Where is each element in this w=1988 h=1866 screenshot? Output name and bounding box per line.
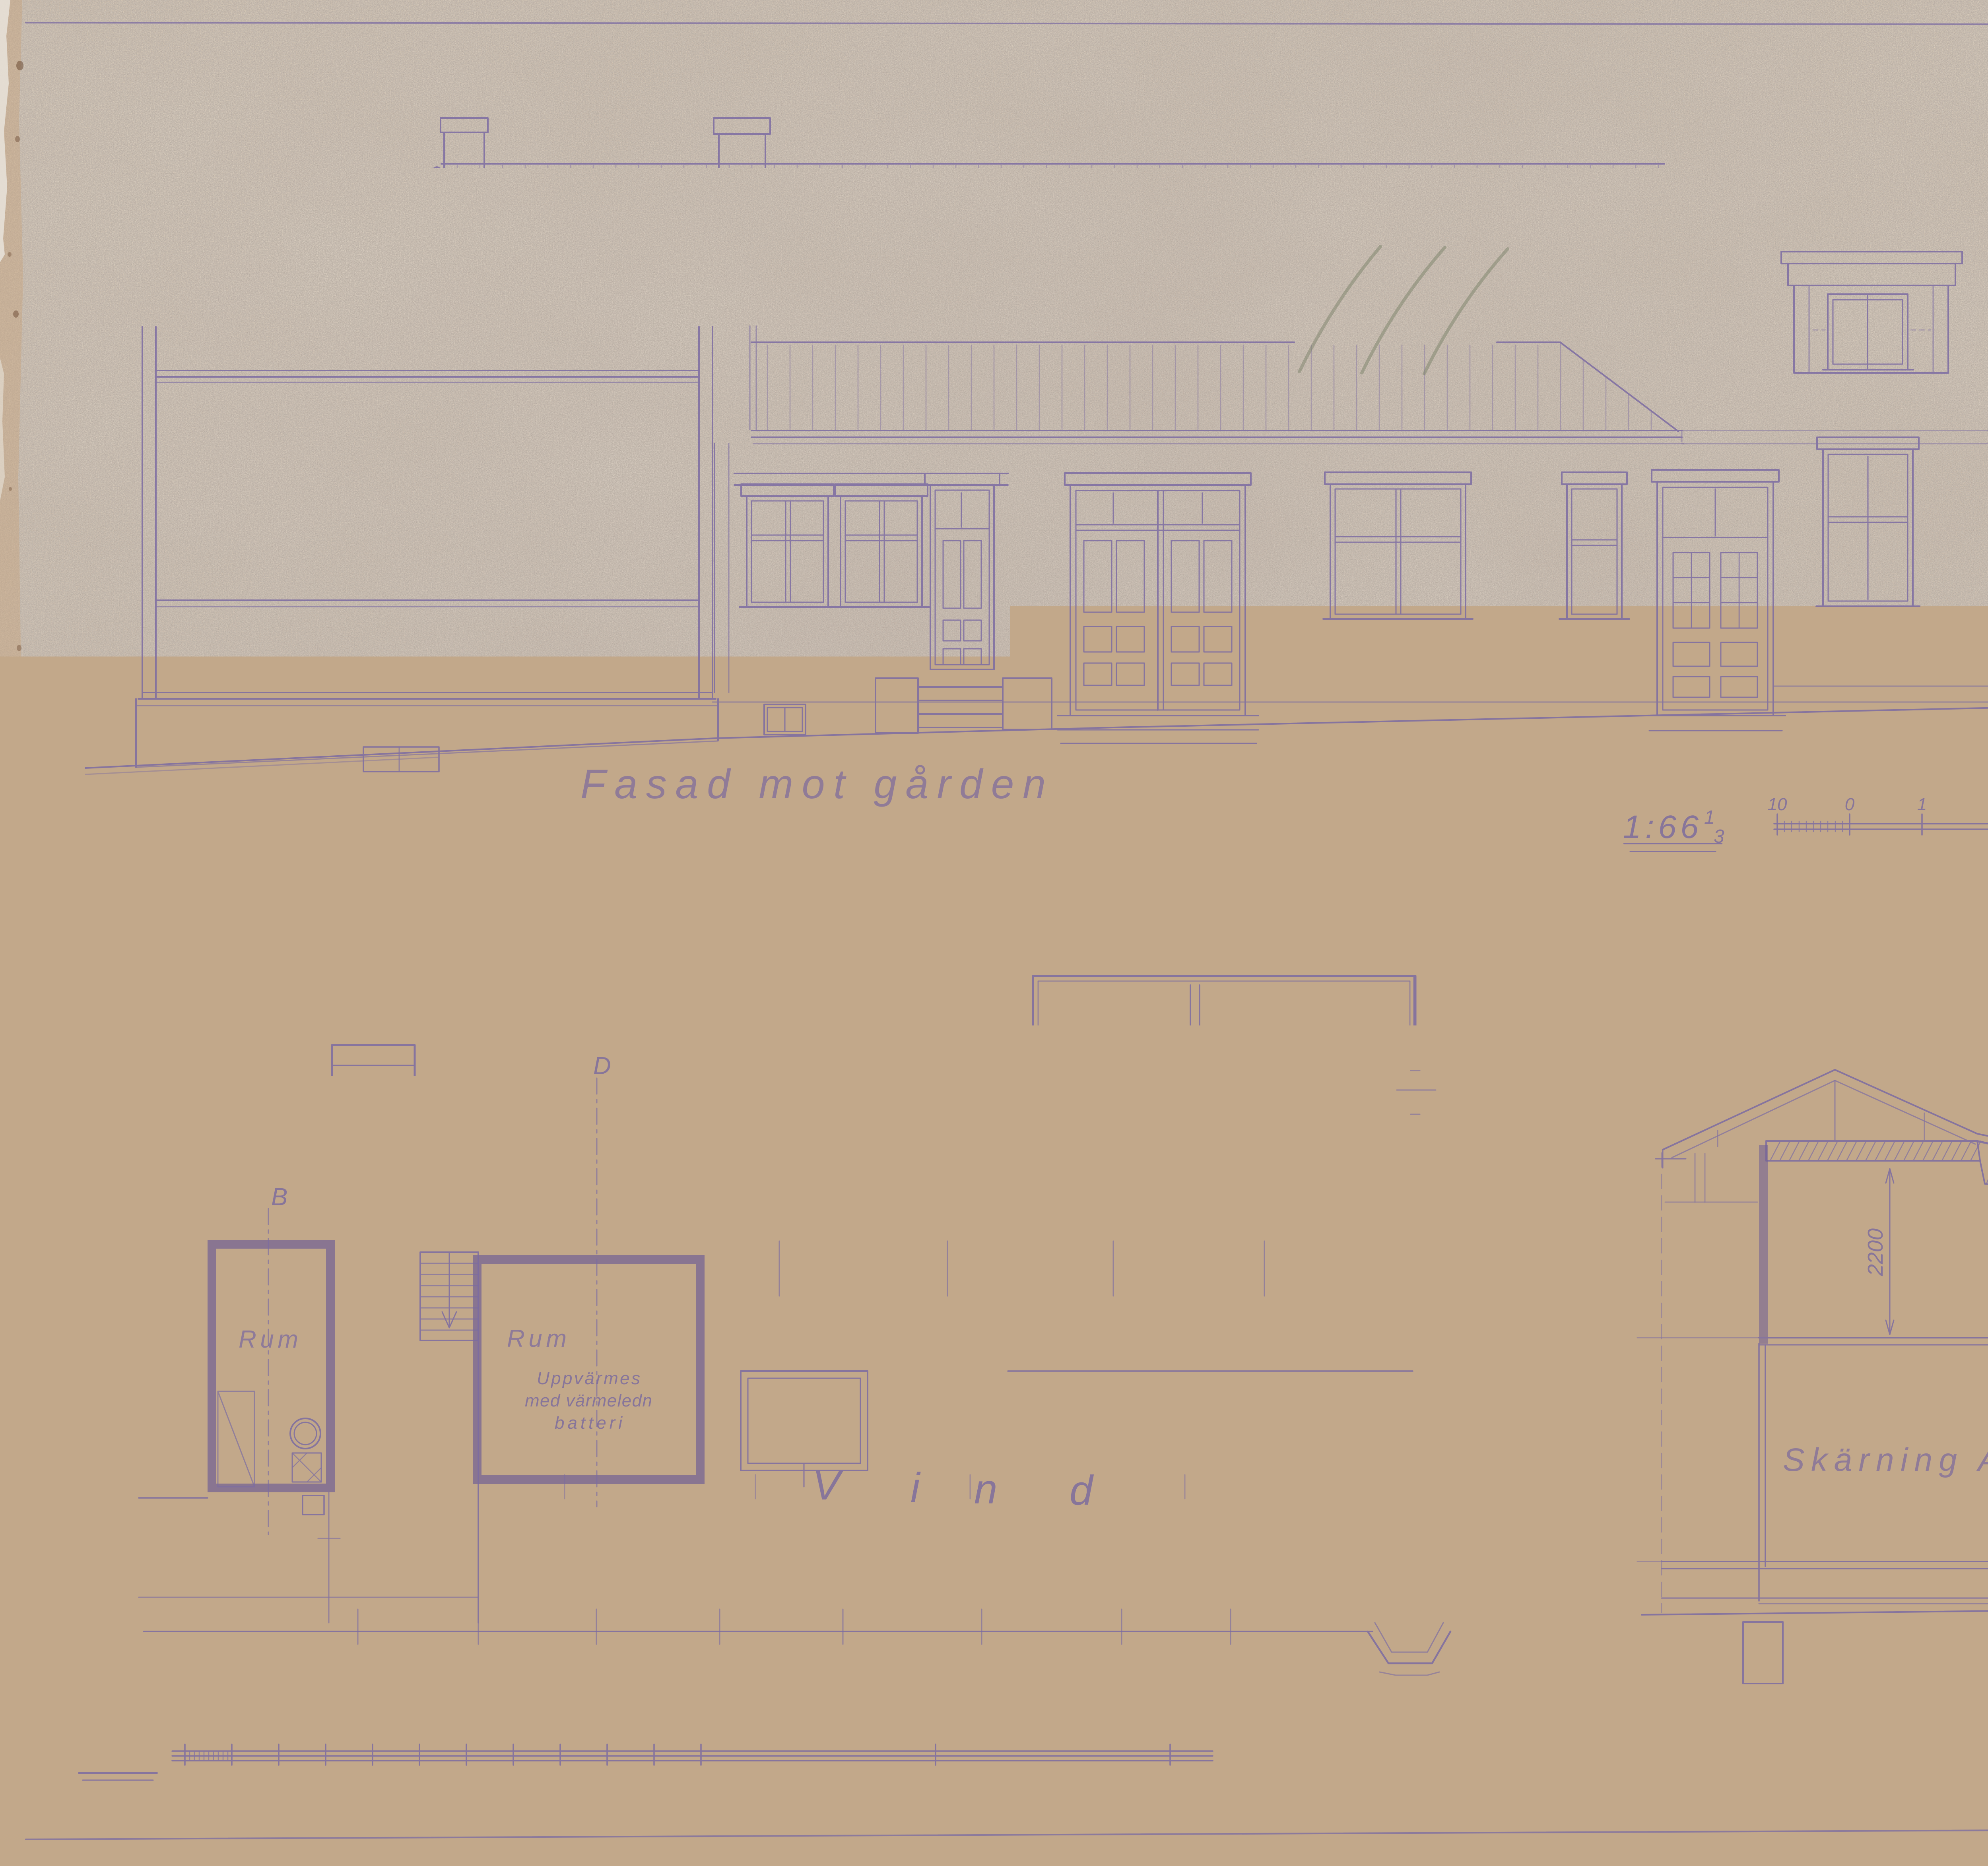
svg-text:3: 3	[1714, 826, 1724, 847]
svg-text:0: 0	[1845, 795, 1855, 814]
svg-text:0: 0	[227, 1725, 237, 1744]
svg-text:V: V	[812, 1462, 844, 1509]
svg-text:1: 1	[1917, 795, 1927, 814]
svg-text:5: 5	[462, 1725, 472, 1744]
svg-text:Fasad mot gården: Fasad mot gården	[580, 761, 1046, 807]
svg-text:10: 10	[691, 1725, 711, 1744]
svg-text:Rum: Rum	[507, 1325, 567, 1352]
svg-text:1:66: 1:66	[1623, 809, 1699, 845]
svg-text:Uppvärmes: Uppvärmes	[537, 1369, 640, 1388]
svg-text:1:100: 1:100	[82, 1735, 153, 1775]
svg-text:2: 2	[320, 1725, 330, 1744]
svg-text:i: i	[911, 1464, 921, 1511]
svg-text:4: 4	[415, 1725, 424, 1744]
svg-text:D: D	[593, 1052, 611, 1080]
svg-text:2200: 2200	[1864, 1228, 1887, 1276]
svg-text:10: 10	[175, 1725, 195, 1744]
svg-text:20: 20	[1160, 1725, 1180, 1744]
svg-text:15: 15	[926, 1725, 945, 1744]
svg-text:3: 3	[368, 1725, 378, 1744]
svg-text:C: C	[588, 1501, 607, 1529]
svg-text:B: B	[271, 1183, 287, 1211]
svg-text:1: 1	[274, 1725, 283, 1744]
svg-text:10: 10	[1768, 795, 1787, 814]
svg-text:1: 1	[1704, 807, 1715, 828]
svg-text:n: n	[974, 1466, 997, 1513]
svg-text:6: 6	[509, 1725, 518, 1744]
svg-text:A: A	[268, 1494, 286, 1521]
svg-text:7: 7	[555, 1725, 566, 1744]
svg-text:med värmeledn: med värmeledn	[525, 1391, 652, 1410]
svg-text:8: 8	[602, 1725, 612, 1744]
svg-text:d: d	[1070, 1467, 1094, 1514]
svg-text:Rum: Rum	[239, 1326, 298, 1353]
svg-text:9: 9	[649, 1725, 659, 1744]
